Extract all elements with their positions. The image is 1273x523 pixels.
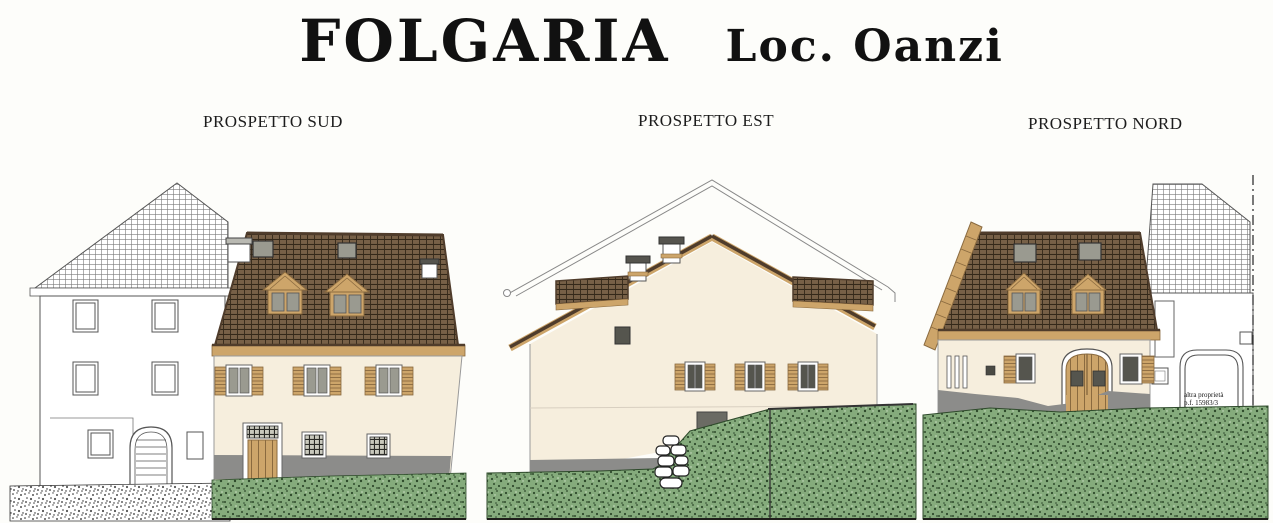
shuttered-window: [675, 362, 715, 391]
gravel-ground-sud: [10, 483, 230, 521]
elevation-sud: [10, 183, 466, 521]
main-building-nord: [924, 222, 1160, 414]
shuttered-window: [735, 362, 775, 391]
chimney-right-sud: [420, 259, 439, 278]
grass-hedge-sud: [212, 473, 466, 519]
ventilation-slits: [947, 356, 967, 388]
elevation-drawings: altra proprietà p.f. 15983/3: [0, 0, 1273, 523]
neighbor-roof-sud: [35, 183, 228, 288]
chimney-left-sud: [226, 238, 252, 262]
shuttered-window: [215, 365, 263, 396]
neighbor-building-sud: [10, 183, 232, 521]
chimney-est: [659, 237, 684, 263]
shuttered-window: [365, 365, 413, 396]
main-building-sud: [212, 233, 466, 519]
neighbor-arched-door-sud: [130, 427, 172, 485]
elevation-nord: altra proprietà p.f. 15983/3: [923, 175, 1268, 519]
eaves-tile-band-left: [556, 276, 628, 310]
eaves-tile-band-right: [793, 277, 873, 311]
shuttered-window: [293, 365, 341, 396]
grass-hedge-nord: [923, 406, 1268, 519]
wall-vent: [986, 366, 995, 375]
barred-window: [302, 432, 326, 458]
neighbor-building-nord: [1145, 175, 1253, 412]
svg-text:altra proprietà: altra proprietà: [1184, 391, 1224, 399]
drawing-sheet: FOLGARIA Loc. Oanzi PROSPETTO SUD PROSPE…: [0, 0, 1273, 523]
chimney-est: [626, 256, 650, 281]
entrance-door-sud: [243, 423, 282, 485]
attic-window-est: [615, 327, 630, 344]
neighbor-roof-nord: [1145, 184, 1250, 293]
eaves-fascia-sud: [212, 345, 465, 356]
shuttered-window: [1120, 354, 1154, 384]
svg-text:p.f. 15983/3: p.f. 15983/3: [1184, 399, 1219, 407]
eaves-fascia-nord: [938, 330, 1160, 340]
barred-window: [367, 434, 390, 458]
elevation-est: [487, 180, 916, 519]
shuttered-window: [788, 362, 828, 391]
shuttered-window: [1004, 354, 1035, 383]
